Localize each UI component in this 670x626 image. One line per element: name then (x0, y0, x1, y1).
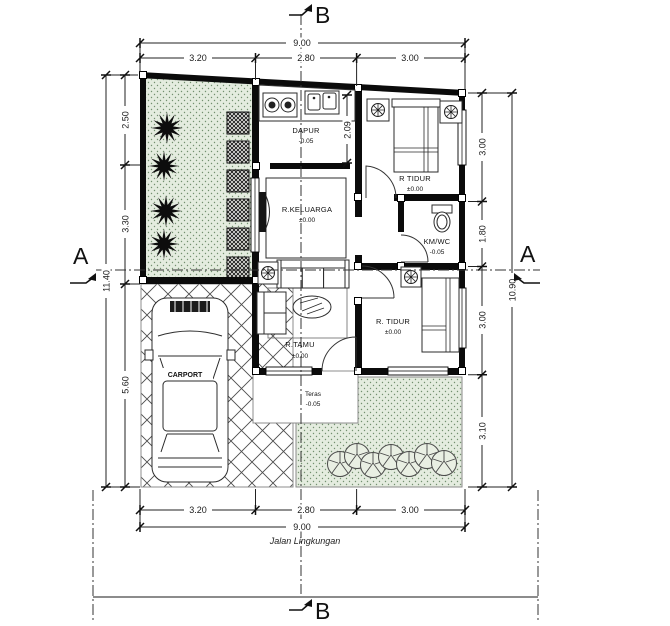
dim-left-seg2: 3.30 (121, 215, 131, 233)
dim-left-seg3: 5.60 (121, 376, 131, 394)
dim-left-total: 11.40 (102, 270, 112, 292)
street-label: Jalan Lingkungan (269, 536, 341, 546)
dim-right-seg4: 3.10 (478, 422, 488, 440)
door-bedroom2 (362, 266, 394, 298)
label-keluarga: R.KELUARGA (282, 205, 332, 214)
car-icon (145, 298, 235, 482)
section-marker-a-left: A (70, 243, 96, 283)
kitchen-counter (259, 85, 355, 121)
label-tamu: R.TAMU (285, 340, 314, 349)
marker-a-left-text: A (73, 243, 89, 269)
floor-plan-drawing: CARPORT (0, 0, 670, 626)
coffee-table-icon (293, 296, 331, 318)
dim-bottom-total: 9.00 (293, 522, 311, 532)
dim-left-seg1: 2.50 (121, 111, 131, 129)
door-bedroom1 (366, 166, 396, 198)
door-terrace (322, 337, 356, 371)
dim-bottom-seg3: 3.00 (401, 505, 419, 515)
marker-b-bottom-text: B (315, 598, 330, 624)
dim-bottom-seg2: 2.80 (297, 505, 315, 515)
bed-icon-bedroom2 (401, 267, 459, 352)
level-tidur2: ±0.00 (385, 329, 402, 336)
bed-icon-bedroom1 (367, 99, 462, 172)
section-marker-a-right: A (514, 241, 540, 283)
side-table-plant-icon (258, 262, 278, 284)
label-kmwc: KM/WC (424, 237, 451, 246)
level-tidur1: ±0.00 (407, 186, 424, 193)
label-tidur1: R TIDUR (399, 174, 431, 183)
sink-icon (305, 91, 339, 114)
section-marker-b-top: B (289, 2, 330, 28)
tv-icon (259, 192, 270, 232)
level-dapur: -0.05 (299, 138, 314, 145)
toilet-icon (432, 205, 452, 232)
dim-top-seg2: 2.80 (297, 53, 315, 63)
section-marker-b-bottom: B (289, 598, 330, 624)
label-teras: Teras (305, 391, 322, 398)
sofa-set (257, 260, 349, 338)
level-tamu: ±0.00 (292, 353, 309, 360)
marker-a-right-text: A (520, 241, 536, 267)
dim-bottom-seg1: 3.20 (189, 505, 207, 515)
dim-top-seg1: 3.20 (189, 53, 207, 63)
carport-label: CARPORT (157, 368, 213, 380)
dim-right-seg3: 3.00 (478, 311, 488, 329)
dim-right-total: 10.90 (508, 279, 518, 302)
dim-kitchen-depth: 2.09 (343, 121, 353, 139)
dim-right-seg2: 1.80 (478, 225, 488, 243)
carport-text: CARPORT (168, 372, 203, 379)
dim-right-seg1: 3.00 (478, 138, 488, 156)
floor-plan-page: CARPORT (0, 0, 670, 626)
level-teras: -0.05 (306, 401, 321, 408)
label-dapur: DAPUR (292, 126, 320, 135)
level-kmwc: -0.05 (430, 249, 445, 256)
stove-icon (263, 93, 297, 117)
dim-top-seg3: 3.00 (401, 53, 419, 63)
dim-top-total: 9.00 (293, 38, 311, 48)
label-tidur2: R. TIDUR (376, 317, 410, 326)
marker-b-top-text: B (315, 2, 330, 28)
level-keluarga: ±0.00 (299, 217, 316, 224)
